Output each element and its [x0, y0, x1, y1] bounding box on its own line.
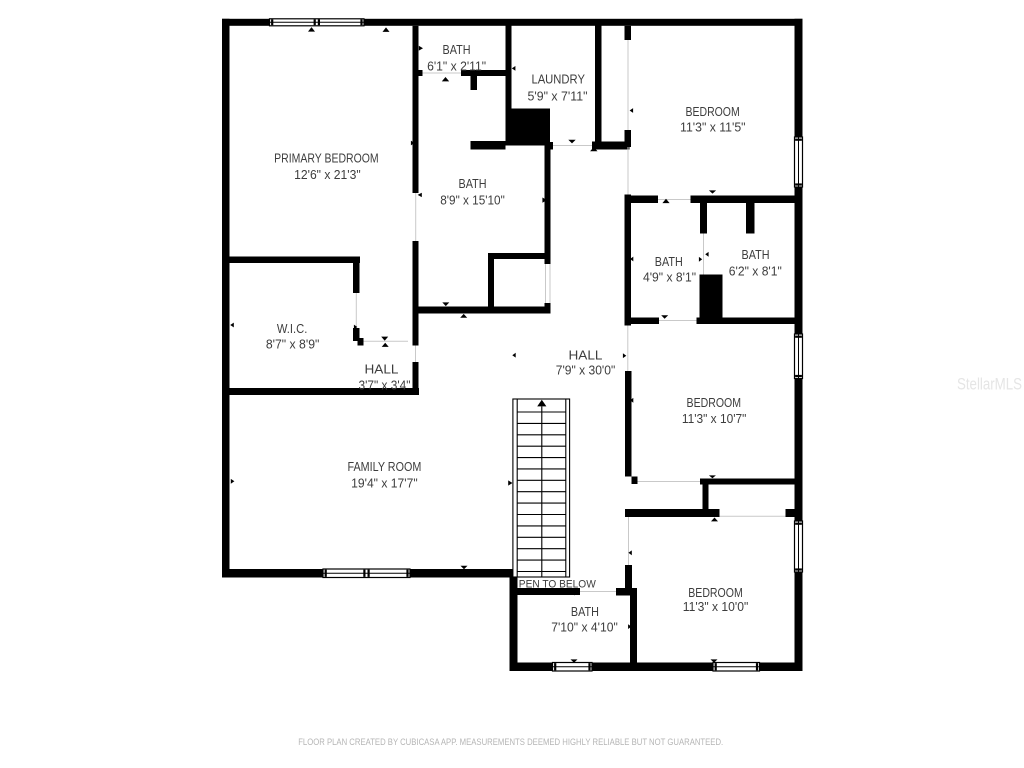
svg-text:BEDROOM: BEDROOM [688, 585, 743, 600]
svg-text:BEDROOM: BEDROOM [687, 395, 742, 410]
svg-text:BATH: BATH [655, 254, 683, 269]
svg-text:PEN TO BELOW: PEN TO BELOW [519, 578, 596, 590]
svg-text:HALL: HALL [365, 362, 399, 377]
svg-text:6'2" x 8'1": 6'2" x 8'1" [729, 264, 782, 279]
svg-text:FAMILY ROOM: FAMILY ROOM [348, 459, 422, 474]
svg-text:StellarMLS: StellarMLS [957, 375, 1022, 394]
svg-text:PRIMARY BEDROOM: PRIMARY BEDROOM [274, 151, 379, 166]
svg-text:11'3" x 11'5": 11'3" x 11'5" [680, 120, 746, 135]
svg-text:8'9" x 15'10": 8'9" x 15'10" [440, 193, 505, 208]
svg-text:6'1" x 2'11": 6'1" x 2'11" [427, 59, 486, 74]
svg-text:19'4" x 17'7": 19'4" x 17'7" [351, 476, 418, 491]
svg-text:12'6" x 21'3": 12'6" x 21'3" [294, 167, 361, 182]
svg-text:7'9" x 30'0": 7'9" x 30'0" [556, 363, 616, 378]
svg-text:BATH: BATH [742, 247, 770, 262]
svg-text:BATH: BATH [571, 604, 599, 619]
svg-text:8'7" x 8'9": 8'7" x 8'9" [266, 336, 320, 351]
svg-text:BATH: BATH [459, 176, 487, 191]
svg-text:FLOOR PLAN CREATED BY CUBICASA: FLOOR PLAN CREATED BY CUBICASA APP. MEAS… [298, 737, 723, 747]
svg-text:3'7" x 3'4": 3'7" x 3'4" [359, 377, 411, 392]
svg-text:7'10" x 4'10": 7'10" x 4'10" [551, 620, 618, 635]
svg-text:BEDROOM: BEDROOM [686, 104, 740, 119]
svg-text:W.I.C.: W.I.C. [277, 321, 308, 336]
svg-text:5'9" x 7'11": 5'9" x 7'11" [528, 88, 588, 103]
svg-text:11'3" x 10'0": 11'3" x 10'0" [683, 599, 749, 614]
svg-text:HALL: HALL [569, 348, 603, 363]
svg-text:11'3" x 10'7": 11'3" x 10'7" [682, 411, 747, 426]
svg-text:LAUNDRY: LAUNDRY [531, 72, 585, 87]
svg-text:BATH: BATH [443, 42, 471, 57]
svg-text:4'9" x 8'1": 4'9" x 8'1" [643, 270, 696, 285]
